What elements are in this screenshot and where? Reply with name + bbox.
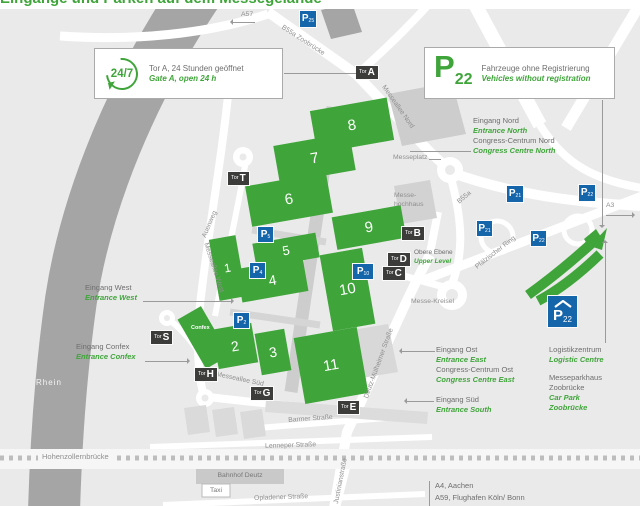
entrance-north-pointer-line <box>410 151 471 152</box>
parking-sign-p5: P5 <box>258 227 273 242</box>
parking-sign-p25: P25 <box>300 11 316 27</box>
autobahn-pointer-line <box>429 481 430 506</box>
hall-4-number: 4 <box>267 271 277 288</box>
entrance-east-label-en: Entrance East <box>436 355 486 365</box>
destination-a59-label: A59, Flughafen Köln/ Bonn <box>435 493 525 503</box>
hall-2-number: 2 <box>230 337 240 354</box>
hall-11: 11 <box>294 327 369 404</box>
page-heading-cropped: Eingänge und Parken auf dem Messegelände <box>0 0 640 9</box>
gate-a-hours-en: Gate A, open 24 h <box>149 74 244 83</box>
p22-box-pointer-line <box>602 100 603 225</box>
a57-arrow-line <box>233 22 255 23</box>
parking-sign-p22-covered: P22 <box>548 296 577 327</box>
entrance-confex-pointer-line <box>145 361 187 362</box>
hall-6-number: 6 <box>283 190 294 208</box>
carpark-label-de2: Zoobrücke <box>549 383 584 393</box>
congress-east-label-de: Congress-Centrum Ost <box>436 365 513 375</box>
messeplatz-tick-line <box>429 159 441 160</box>
carpark-label-en1: Car Park <box>549 393 580 403</box>
destination-a4-label: A4, Aachen <box>435 481 473 491</box>
parking-sign-p22-north: P22 <box>579 185 595 201</box>
gate-tor-d: TorD <box>388 253 410 266</box>
congress-north-label-en: Congress Centre North <box>473 146 556 156</box>
24-7-badge-text: 24/7 <box>104 56 140 92</box>
hall-1-number: 1 <box>223 261 232 276</box>
road-label-a3: A3 <box>606 202 614 209</box>
logistics-label-de: Logistikzentrum <box>549 345 602 355</box>
hall-5-number: 5 <box>281 242 291 258</box>
carpark-label-de1: Messeparkhaus <box>549 373 602 383</box>
taxi-label: Taxi <box>202 484 230 497</box>
entrance-east-pointer-line <box>402 351 435 352</box>
24-7-circular-arrow-icon: 24/7 <box>104 56 140 92</box>
site-map: Eingänge und Parken auf dem Messegelände… <box>0 0 640 506</box>
road-label-a57: A57 <box>241 11 253 18</box>
hall-9-number: 9 <box>363 218 374 236</box>
hall-3-number: 3 <box>268 343 278 360</box>
p22-infobox-de: Fahrzeuge ohne Registrierung <box>481 64 590 73</box>
confex-label: Confex <box>191 325 210 331</box>
messe-kreisel-label: Messe-Kreisel <box>411 298 454 305</box>
hall-11-number: 11 <box>322 356 340 375</box>
messehochhaus-label-2: hochhaus <box>394 201 423 208</box>
p22-logo: P22 <box>434 51 472 95</box>
parking-sign-p21-north: P21 <box>507 186 523 202</box>
a3-arrow-line <box>606 215 632 216</box>
entrance-east-label-de: Eingang Ost <box>436 345 477 355</box>
gate-tor-g: TorG <box>251 387 273 400</box>
upper-level-label-en: Upper Level <box>414 258 451 267</box>
gate-tor-a: TorA <box>356 66 378 79</box>
entrance-north-label-en: Entrance North <box>473 126 527 136</box>
parking-sign-p2: P2 <box>234 313 249 328</box>
congress-east-label-en: Congress Centre East <box>436 375 514 385</box>
gate-tor-s: TorS <box>151 331 172 344</box>
entrance-west-label-en: Entrance West <box>85 293 137 303</box>
entrance-west-label-de: Eingang West <box>85 283 132 293</box>
parking-sign-p10: P10 <box>353 264 373 279</box>
hall-8-number: 8 <box>346 116 357 134</box>
gate-a-hours-infobox: 24/7 Tor A, 24 Stunden geöffnet Gate A, … <box>94 48 283 99</box>
p22-infobox: P22 Fahrzeuge ohne Registrierung Vehicle… <box>424 47 615 99</box>
messehochhaus-label-1: Messe- <box>394 192 416 199</box>
gate-tor-t: TorT <box>228 172 249 185</box>
entrance-south-pointer-line <box>407 401 434 402</box>
logistics-label-en: Logistic Centre <box>549 355 604 365</box>
gate-tor-e: TorE <box>338 401 359 414</box>
entrance-north-label-de: Eingang Nord <box>473 116 519 126</box>
upper-level-label-de: Obere Ebene <box>414 249 453 258</box>
entrance-west-pointer-line <box>143 301 231 302</box>
p22-infobox-en: Vehicles without registration <box>481 74 590 83</box>
parking-sign-p4: P4 <box>250 263 265 278</box>
entrance-confex-label-de: Eingang Confex <box>76 342 129 352</box>
entrance-south-label-en: Entrance South <box>436 405 491 415</box>
parking-sign-p21-ring: P21 <box>477 221 492 236</box>
gate-tor-b: TorB <box>402 227 424 240</box>
gate-a-hours-de: Tor A, 24 Stunden geöffnet <box>149 64 244 73</box>
parking-sign-p22-ring: P22 <box>531 231 546 246</box>
gate-tor-h: TorH <box>195 368 217 381</box>
hall-10-number: 10 <box>338 280 357 300</box>
logistics-pointer-line <box>605 243 606 343</box>
congress-north-label-de: Congress-Centrum Nord <box>473 136 555 146</box>
entrance-confex-label-en: Entrance Confex <box>76 352 136 362</box>
hohenzollernbruecke-label: Hohenzollernbrücke <box>38 452 113 461</box>
gate-tor-c: TorC <box>383 267 405 280</box>
entrance-south-label-de: Eingang Süd <box>436 395 479 405</box>
gate-a-pointer-line <box>284 73 356 74</box>
carpark-label-en2: Zoobrücke <box>549 403 587 413</box>
rhein-label: Rhein <box>36 378 62 387</box>
messeplatz-label: Messeplatz <box>393 154 427 161</box>
bahnhof-deutz-label: Bahnhof Deutz <box>196 466 284 484</box>
page-heading-text: Eingänge und Parken auf dem Messegelände <box>0 0 640 7</box>
